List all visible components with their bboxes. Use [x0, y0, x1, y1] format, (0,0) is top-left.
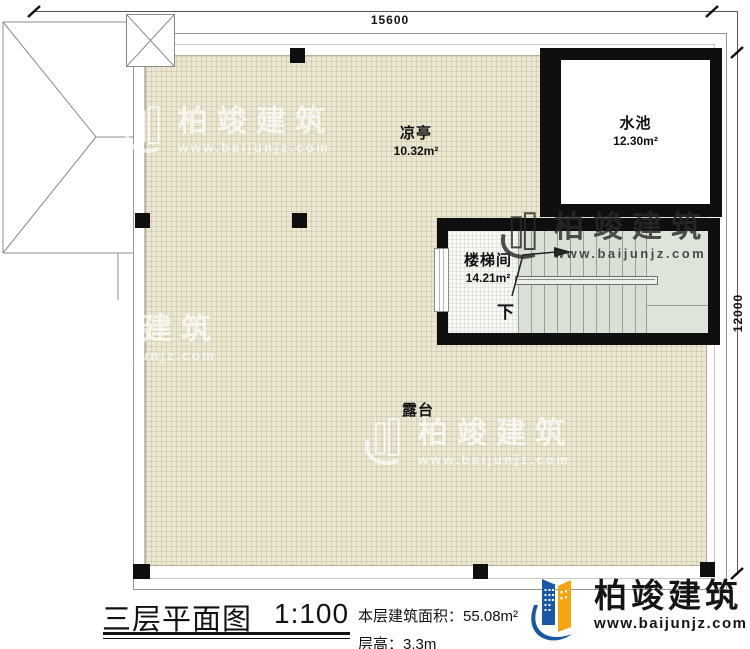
column [292, 213, 307, 228]
floor-height-label: 层高： [358, 636, 403, 649]
company-logo-icon [524, 577, 588, 645]
column [700, 562, 715, 577]
floor-plan-canvas: 15600 12000 水池 12.30m² [0, 0, 750, 649]
stair-down-label: 下 [497, 298, 514, 323]
stairwell-label: 楼梯间 14.21m² [448, 252, 528, 286]
top-dimension-line [33, 11, 737, 12]
title-underline [103, 632, 350, 635]
floor-area-value: 55.08m² [463, 608, 518, 625]
column [133, 564, 150, 579]
stair-handrail [515, 276, 658, 285]
drawing-scale: 1:100 [274, 598, 349, 630]
company-logo: 柏竣建筑 www.baijunjz.com [524, 577, 747, 645]
column [473, 564, 488, 579]
room-pool: 水池 12.30m² [561, 60, 710, 204]
column [135, 213, 150, 228]
terrace-name: 露台 [383, 402, 453, 421]
vent-cross-icon [127, 15, 174, 66]
title-underline [103, 638, 350, 639]
stairwell-window [434, 248, 449, 312]
floor-height-value: 3.3m [403, 636, 436, 649]
roof-vent-box [126, 14, 175, 67]
stairwell-name: 楼梯间 [448, 252, 528, 271]
floor-area-label: 本层建筑面积： [358, 608, 463, 625]
pool-area: 12.30m² [613, 134, 658, 149]
company-website: www.baijunjz.com [594, 615, 747, 632]
right-dimension-label: 12000 [731, 281, 745, 345]
stairwell-area: 14.21m² [448, 271, 528, 286]
stair-landing-edge [646, 305, 708, 306]
pavilion-area: 10.32m² [366, 144, 466, 159]
pool-name: 水池 [613, 115, 658, 134]
terrace-label: 露台 [383, 402, 453, 421]
company-name: 柏竣建筑 [594, 577, 747, 615]
drawing-info: 本层建筑面积：55.08m² 层高：3.3m [358, 603, 518, 649]
pavilion-name: 凉亭 [366, 125, 466, 144]
pavilion-label: 凉亭 10.32m² [366, 125, 466, 159]
column [290, 48, 305, 63]
top-dimension-label: 15600 [358, 13, 422, 27]
